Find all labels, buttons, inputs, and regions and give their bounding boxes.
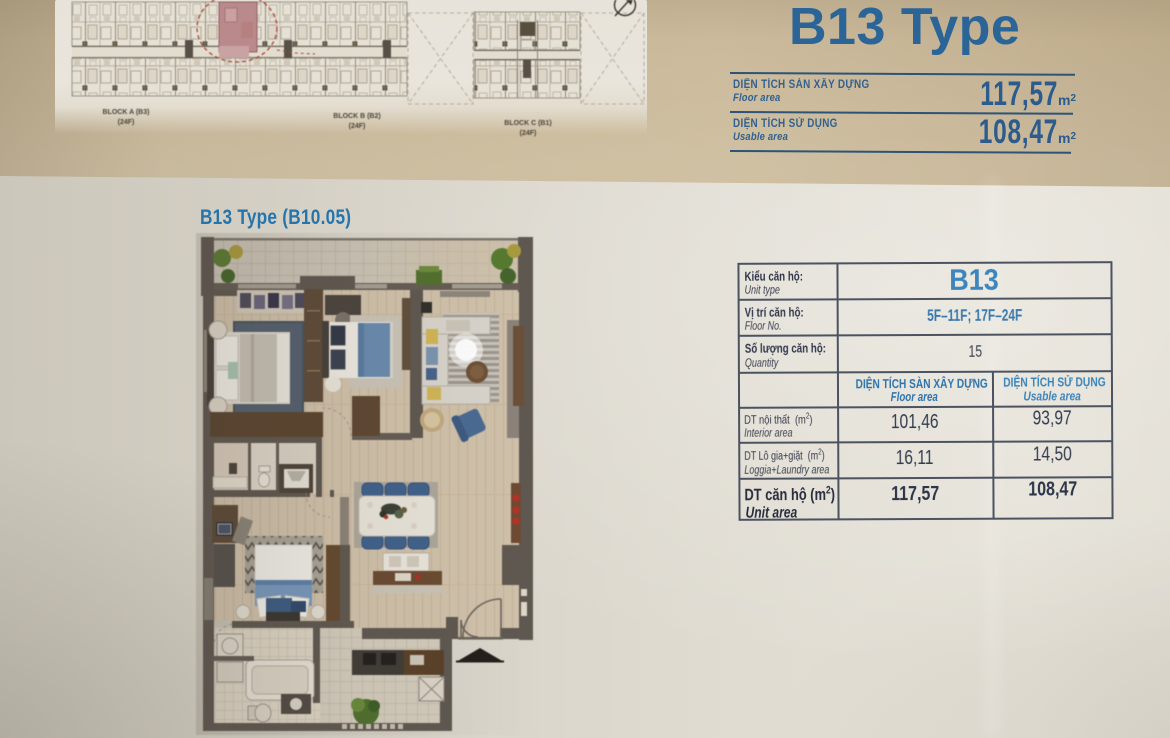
svg-text:(24F): (24F) xyxy=(520,130,537,137)
svg-text:(24F): (24F) xyxy=(349,123,366,130)
svg-text:BLOCK B (B2): BLOCK B (B2) xyxy=(333,113,380,120)
svg-text:BLOCK A (B3): BLOCK A (B3) xyxy=(103,109,150,116)
svg-text:BLOCK C (B1): BLOCK C (B1) xyxy=(504,120,551,127)
svg-text:(24F): (24F) xyxy=(118,119,135,126)
